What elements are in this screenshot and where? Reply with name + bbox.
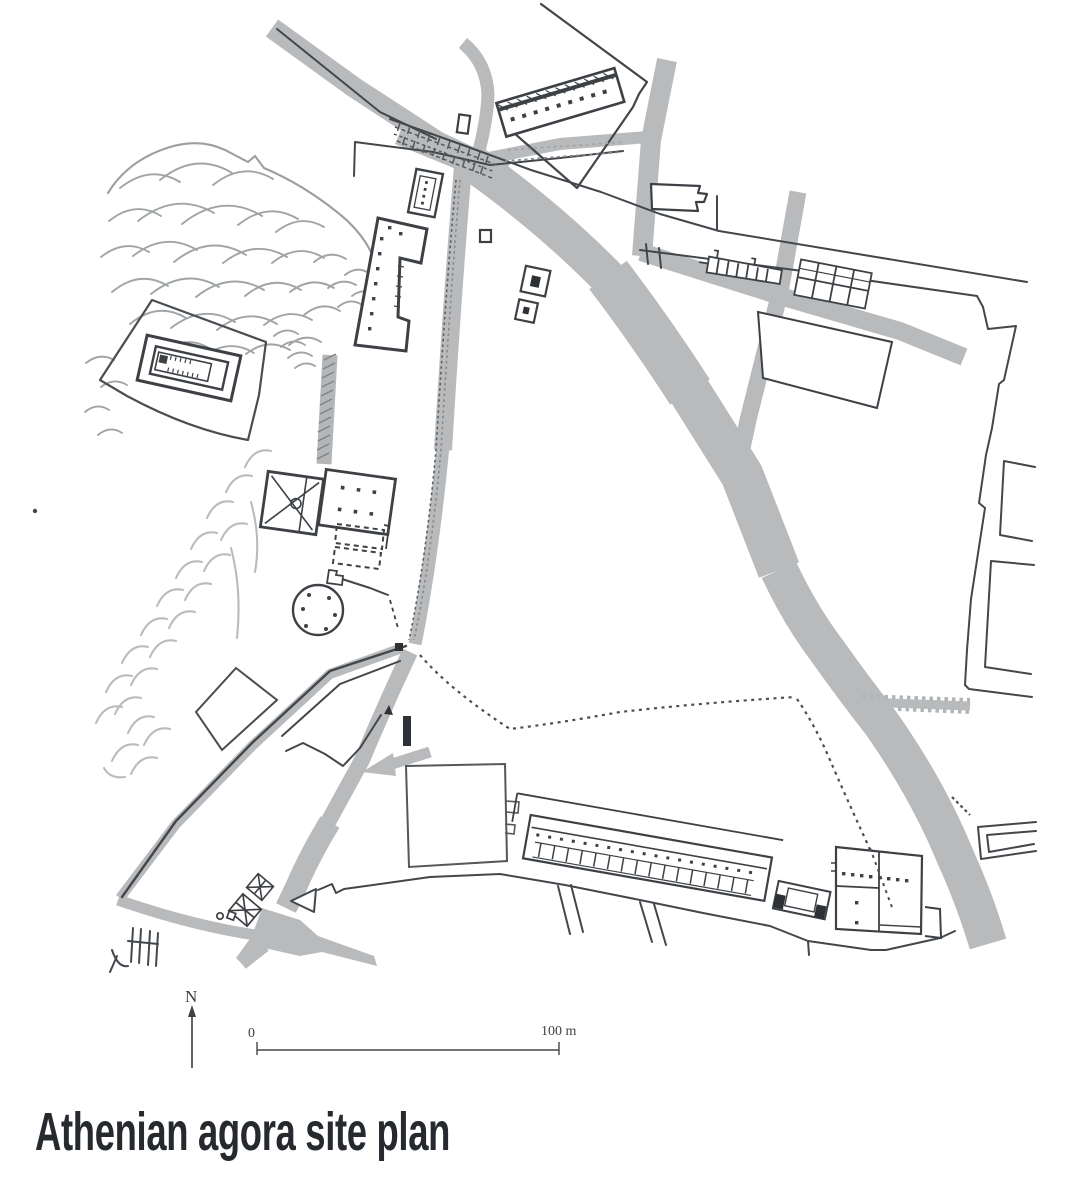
svg-text:0: 0 [248, 1026, 255, 1041]
svg-text:N: N [185, 987, 197, 1006]
svg-text:100 m: 100 m [541, 1024, 577, 1039]
svg-text:Athenian agora site plan: Athenian agora site plan [35, 1101, 450, 1162]
